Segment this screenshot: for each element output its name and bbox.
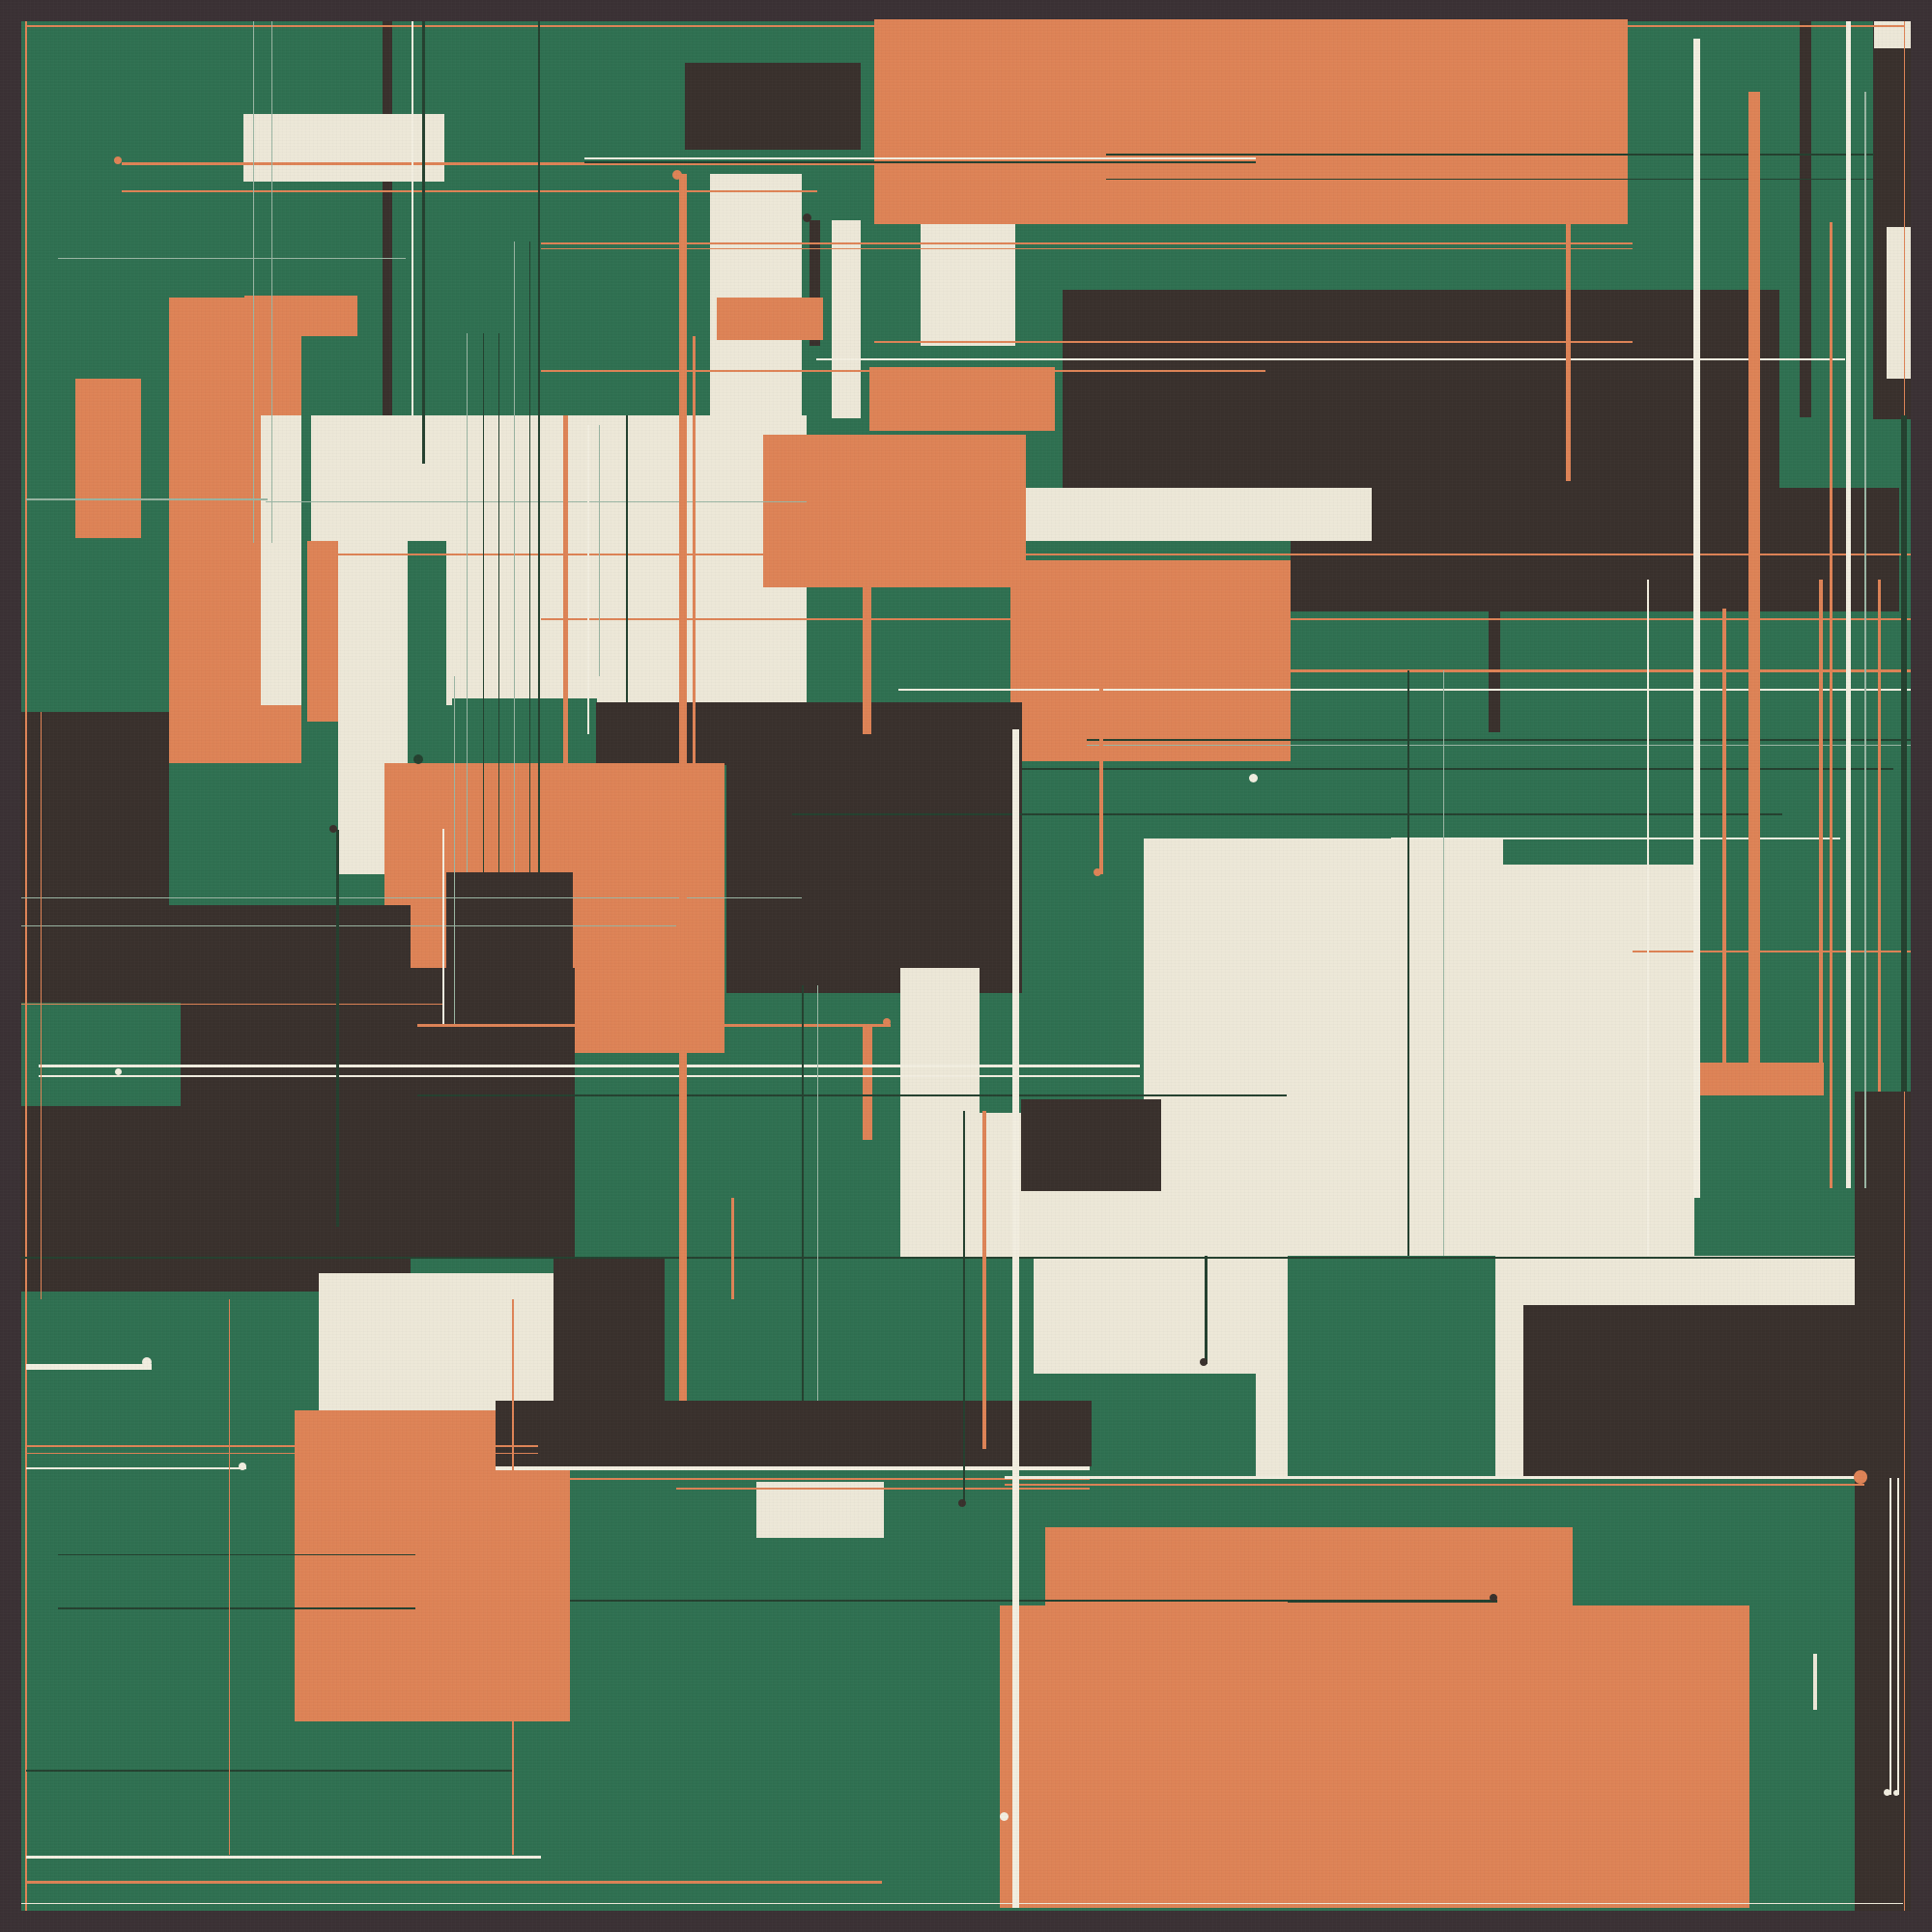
line-shape: [1087, 739, 1911, 741]
line-shape: [570, 1600, 1289, 1602]
rect-shape: [75, 379, 141, 538]
rect-shape: [1000, 1605, 1749, 1908]
line-shape: [676, 1488, 1090, 1490]
rect-shape: [496, 1401, 1092, 1466]
line-shape: [679, 174, 687, 1401]
line-shape: [271, 21, 272, 543]
line-shape: [512, 1299, 514, 1855]
line-shape: [1633, 951, 1911, 952]
generative-artwork: [0, 0, 1932, 1932]
line-shape: [483, 333, 484, 872]
rect-shape: [307, 541, 338, 722]
rect-shape: [717, 298, 823, 340]
line-shape: [253, 21, 254, 543]
line-shape: [792, 813, 1782, 815]
line-shape: [266, 501, 807, 502]
line-shape: [21, 1004, 444, 1005]
rect-shape: [726, 765, 1022, 993]
line-shape: [26, 1881, 882, 1884]
line-shape: [514, 241, 515, 872]
line-shape: [816, 358, 1845, 360]
line-shape: [39, 1065, 1140, 1067]
rect-shape: [319, 1273, 560, 1413]
dot-shape: [1854, 1470, 1867, 1484]
line-shape: [1087, 669, 1911, 672]
dot-shape: [1893, 1790, 1899, 1796]
rect-shape: [21, 1003, 181, 1106]
line-shape: [584, 161, 1256, 163]
rect-shape: [1021, 1099, 1161, 1191]
line-shape: [1087, 745, 1911, 746]
dot-shape: [1490, 1594, 1497, 1602]
line-shape: [1443, 670, 1444, 1256]
line-shape: [538, 21, 540, 872]
line-shape: [21, 1903, 1903, 1904]
line-shape: [26, 1856, 541, 1859]
line-shape: [1288, 1600, 1497, 1603]
line-shape: [1897, 1478, 1899, 1795]
line-shape: [1748, 92, 1760, 1092]
line-shape: [26, 1770, 512, 1772]
line-shape: [626, 415, 628, 702]
line-shape: [496, 1466, 1090, 1470]
line-shape: [863, 435, 871, 734]
dot-shape: [883, 1018, 891, 1026]
rect-shape: [1144, 838, 1503, 1258]
line-shape: [963, 1111, 965, 1505]
line-shape: [541, 242, 1633, 244]
dot-shape: [958, 1499, 966, 1507]
line-shape: [1830, 222, 1833, 1188]
rect-shape: [1523, 1305, 1857, 1477]
line-shape: [417, 1024, 891, 1027]
dot-shape: [142, 1357, 152, 1367]
rect-shape: [1063, 290, 1779, 489]
line-shape: [336, 830, 339, 1227]
rect-shape: [446, 872, 573, 969]
rect-shape: [261, 415, 807, 705]
line-shape: [599, 425, 600, 676]
dot-shape: [239, 1463, 246, 1470]
line-shape: [26, 498, 268, 500]
rect-shape: [863, 1024, 872, 1140]
rect-shape: [1887, 227, 1911, 379]
dot-shape: [413, 754, 423, 764]
rect-shape: [244, 296, 357, 336]
line-shape: [982, 1111, 986, 1449]
line-shape: [1813, 1654, 1817, 1710]
dot-shape: [329, 825, 337, 833]
line-shape: [1846, 21, 1851, 1188]
line-shape: [1391, 838, 1840, 839]
line-shape: [58, 1554, 415, 1555]
rect-shape: [763, 435, 1026, 587]
line-shape: [1693, 39, 1700, 1198]
line-shape: [1005, 1484, 1864, 1486]
dot-shape: [1249, 774, 1258, 782]
line-shape: [229, 1299, 230, 1855]
line-shape: [1566, 224, 1571, 481]
line-shape: [1099, 580, 1103, 874]
rect-shape: [710, 174, 802, 418]
line-shape: [1878, 580, 1881, 1092]
rect-shape: [1034, 1256, 1293, 1374]
rect-shape: [1291, 488, 1899, 611]
line-shape: [587, 425, 589, 734]
line-shape: [693, 336, 696, 833]
line-shape: [26, 1467, 246, 1469]
line-shape: [58, 258, 406, 259]
line-shape: [1722, 609, 1726, 1092]
rect-shape: [1698, 1063, 1824, 1095]
line-shape: [454, 676, 455, 1024]
line-shape: [412, 21, 413, 415]
line-shape: [442, 829, 444, 1024]
line-shape: [874, 341, 1633, 343]
dot-shape: [1000, 1812, 1009, 1821]
line-shape: [467, 333, 468, 872]
rect-shape: [1855, 1092, 1911, 1911]
line-shape: [541, 248, 1633, 249]
rect-shape: [596, 702, 1022, 765]
line-shape: [498, 333, 499, 872]
line-shape: [1889, 1478, 1891, 1795]
line-shape: [802, 985, 804, 1401]
rect-shape: [554, 1258, 665, 1403]
line-shape: [584, 157, 1256, 159]
dot-shape: [114, 156, 122, 164]
line-shape: [541, 618, 1911, 620]
line-shape: [21, 1257, 1855, 1259]
line-shape: [21, 925, 676, 926]
line-shape: [1864, 92, 1866, 1188]
line-shape: [1012, 729, 1019, 1908]
rect-shape: [756, 1482, 884, 1538]
line-shape: [422, 21, 425, 464]
rect-shape: [243, 114, 444, 182]
line-shape: [731, 1198, 734, 1299]
rect-shape: [869, 367, 1055, 431]
line-shape: [1647, 580, 1649, 1256]
line-shape: [496, 1478, 1090, 1480]
rect-shape: [1010, 488, 1372, 541]
line-shape: [122, 190, 817, 192]
line-shape: [1022, 768, 1893, 770]
rect-shape: [921, 220, 1015, 346]
line-shape: [1407, 670, 1409, 1256]
line-shape: [1005, 1476, 1864, 1479]
line-shape: [39, 1075, 1140, 1077]
line-shape: [1205, 1256, 1207, 1364]
line-shape: [26, 1453, 538, 1454]
line-shape: [529, 241, 530, 872]
dot-shape: [115, 1068, 122, 1075]
rect-shape: [900, 968, 980, 1113]
line-shape: [541, 370, 1265, 372]
line-shape: [26, 1445, 538, 1447]
rect-shape: [1010, 560, 1291, 761]
line-shape: [1819, 580, 1823, 1092]
dot-shape: [1884, 1789, 1890, 1796]
line-shape: [26, 25, 1904, 27]
line-shape: [58, 1607, 415, 1609]
dot-shape: [1094, 868, 1101, 876]
dot-shape: [672, 170, 682, 180]
rect-shape: [832, 220, 861, 418]
line-shape: [563, 415, 568, 763]
rect-shape: [1503, 865, 1694, 1258]
line-shape: [817, 985, 818, 1401]
line-shape: [41, 712, 42, 1299]
line-shape: [26, 1364, 152, 1370]
line-shape: [1901, 415, 1907, 1092]
rect-shape: [874, 19, 1628, 224]
line-shape: [25, 21, 27, 1911]
dot-shape: [1200, 1358, 1207, 1366]
line-shape: [417, 1094, 1287, 1096]
dot-shape: [803, 213, 811, 222]
rect-shape: [685, 63, 861, 150]
